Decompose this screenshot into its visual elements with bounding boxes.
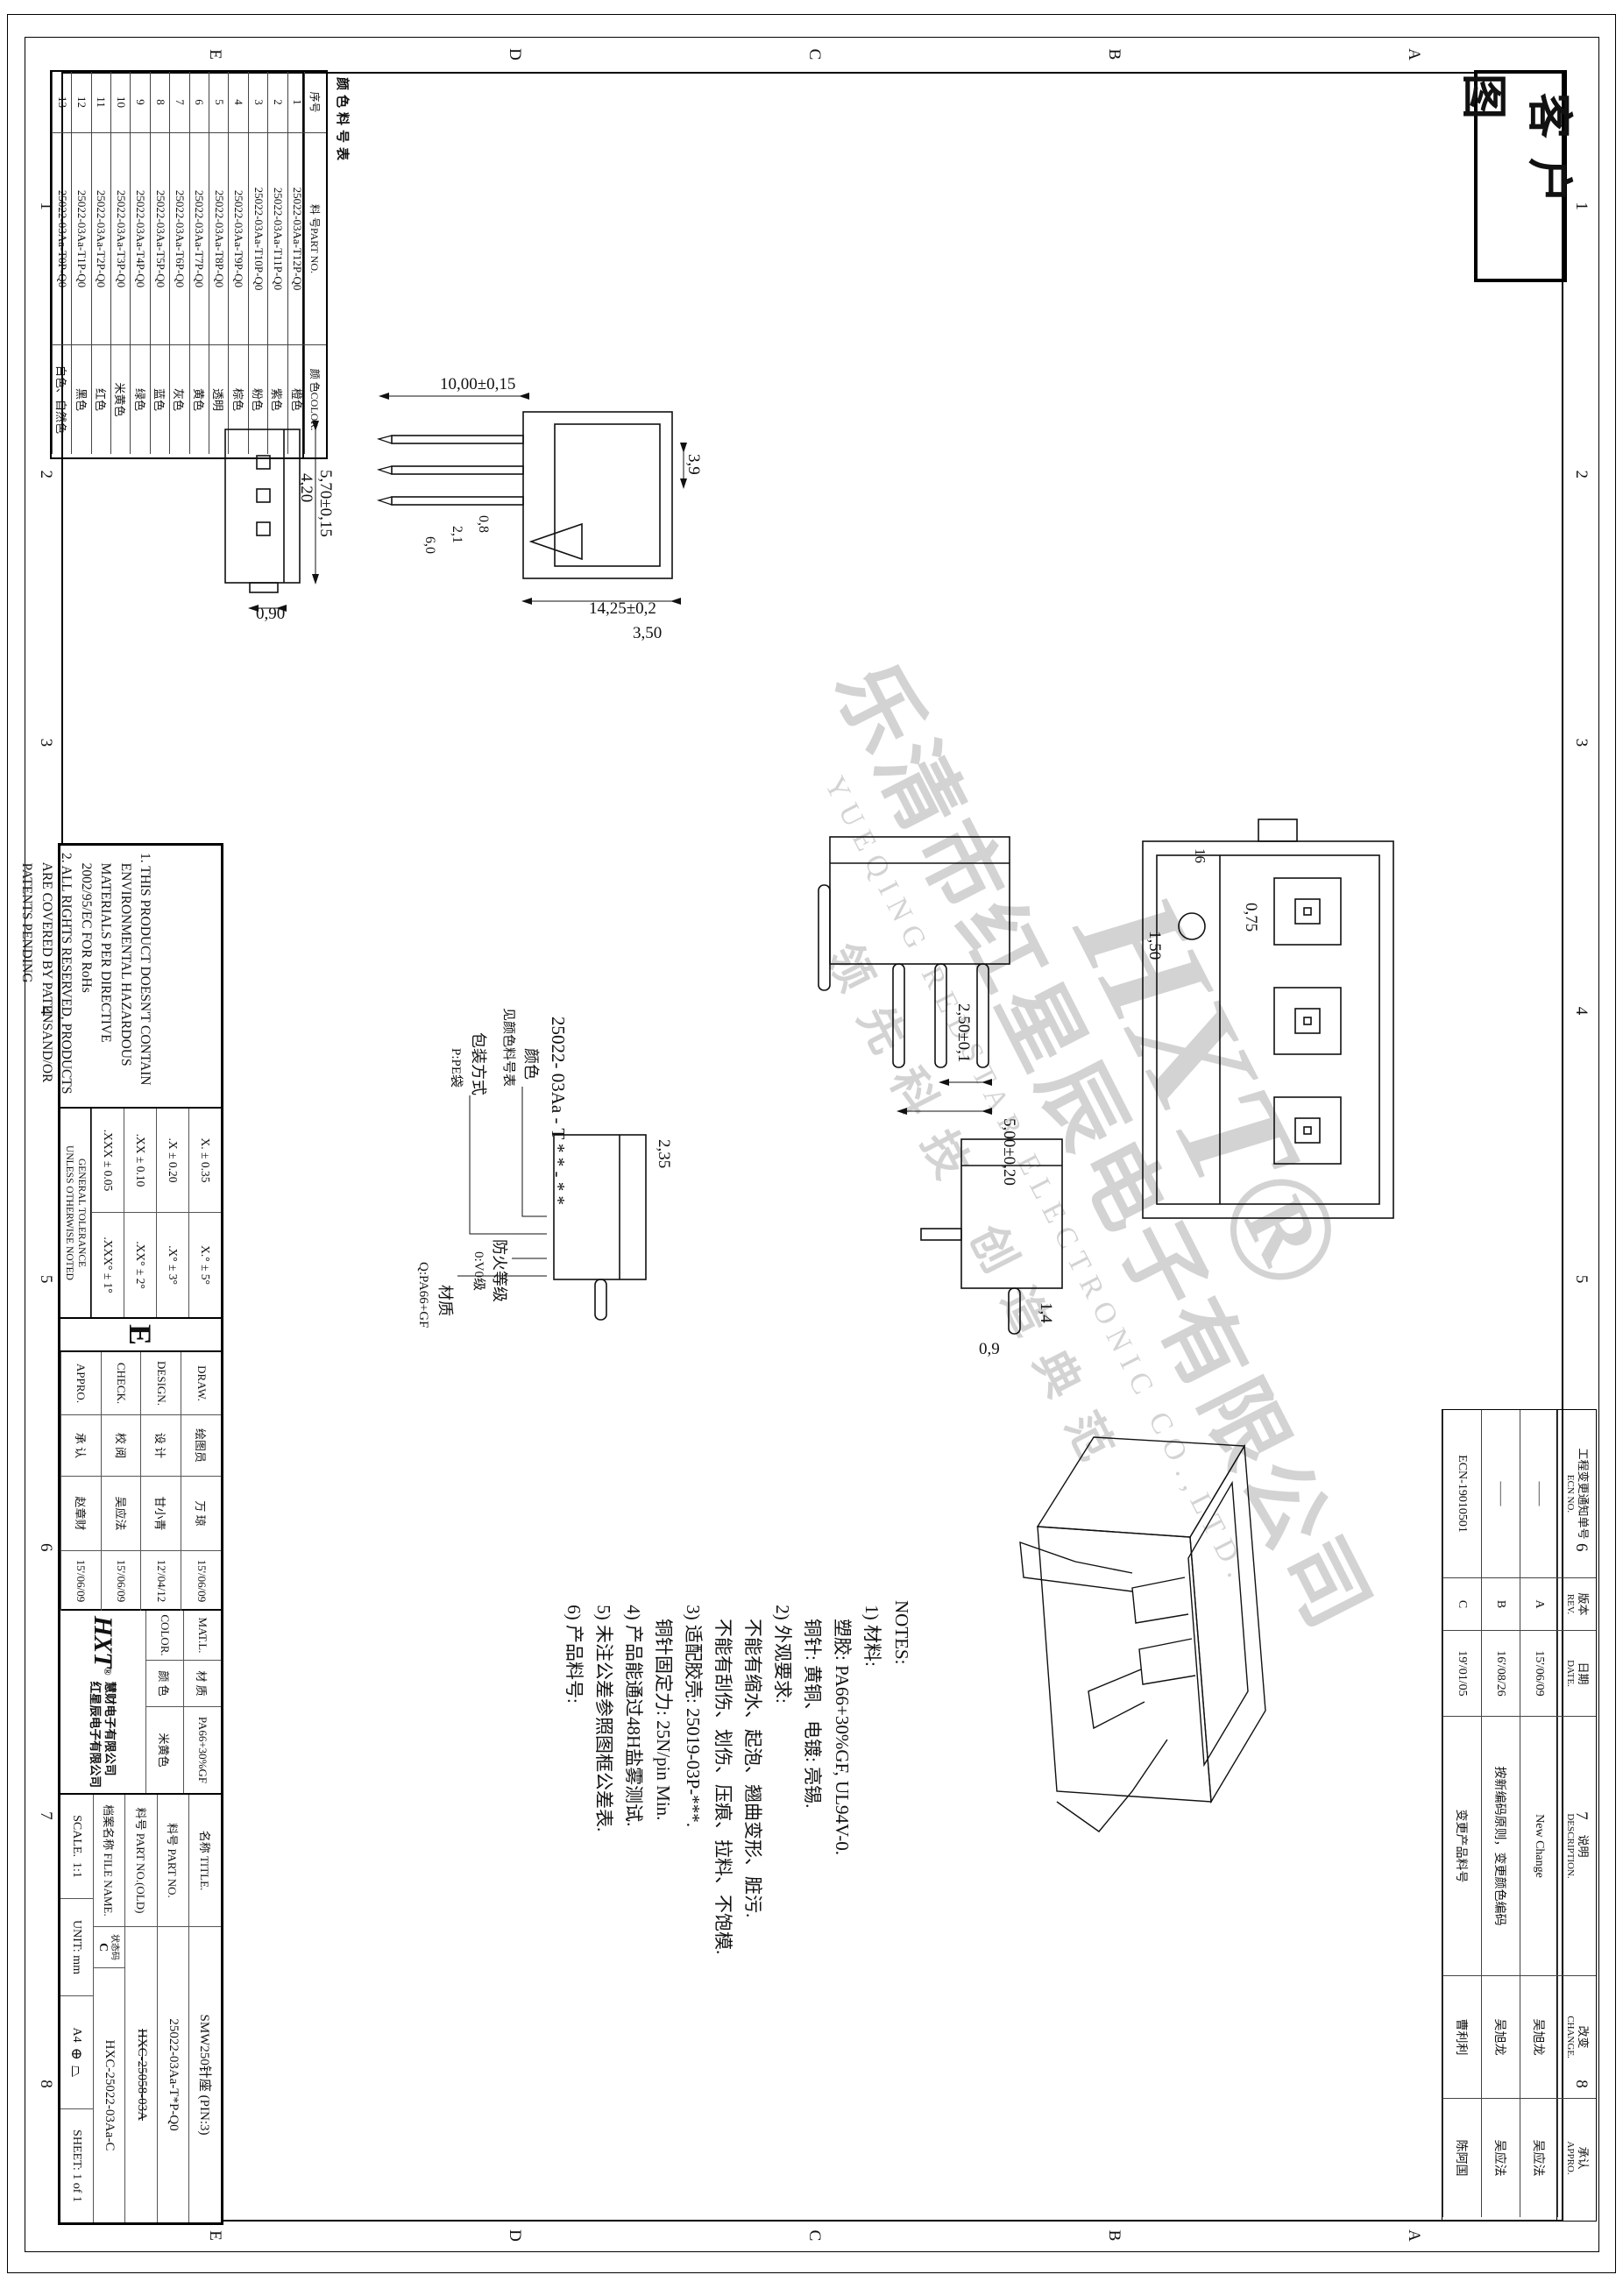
drawing-sheet: HXT® 乐清市红星辰电子有限公司 YUEQING REDSTAR ELECTR… [0,0,1623,2296]
zone-letter: C [664,2218,964,2253]
ecn-header-change: 改变CHANGE. [1557,1976,1596,2099]
note-line: 铜针: 黄铜、电镀: 亮锡. [797,1600,827,2144]
matl-value: PA66+30%GF [184,1707,221,1793]
title-value: SMW250针座 (PIN:3) [190,1927,222,2222]
ecn-header-date: 日期DATE. [1557,1631,1596,1717]
note-line: 2. ALL RIGHTS RESERVED, PRODUCTS [56,853,76,1103]
zone-letter: B [964,2218,1264,2253]
note-line: ENVIRONMENTAL HAZARDOUS [116,853,136,1103]
zone-number: 3 [1563,608,1599,876]
zone-letter: D [365,37,664,72]
old-partno-label: 料号 PART NO.(OLD) [126,1795,158,1927]
note-line: PATENTS PENDING [17,853,37,1103]
notes-english: 1. THIS PRODUCT DOESN'T CONTAIN ENVIRONM… [60,846,221,1109]
scale-row: SCALE.1:1 UNIT: mm A4 ⊕ ⏢ SHEET: 1 of 1 [60,1795,93,2222]
zone-letters-right: ABCDE [65,2218,1563,2253]
company-logo-block: HXT® 慧财电子有限公司 红星辰电子有限公司 [60,1611,145,1793]
note-line: 3) 适配胶壳: 25019-03P-***. [678,1600,708,2144]
note-line: NOTES: [887,1600,917,2144]
customer-drawing-stamp: 客户图 [1474,70,1567,282]
hxt-logo: HXT® [89,1616,118,1675]
col-header-part: 料 号PART NO. [304,133,326,345]
note-line: 1) 材料: [857,1600,887,2144]
note-line: ARE COVERED BY PATENSAND/OR [37,853,57,1103]
zone-number: 4 [1563,876,1599,1144]
zone-number: 5 [1563,1145,1599,1414]
note-line: 6) 产品料号: [559,1600,589,2144]
zone-number: 2 [1563,340,1599,608]
scale-cell: SCALE.1:1 [60,1795,93,1899]
ecn-header-desc: 说明DESCRIPTION. [1557,1717,1596,1976]
title-block: 1. THIS PRODUCT DOESN'T CONTAIN ENVIRONM… [58,843,223,2225]
note-line: 5) 未注公差参照图框公差表. [589,1600,619,2144]
note-line: 铜针固定力: 25N/pin Min. [648,1600,678,2144]
col-header-color: 颜 色COLOR. [304,345,326,454]
zone-letters-left: ABCDE [65,37,1563,72]
tolerance-table: X. ± 0.35X.° ± 5°.X ± 0.20.X° ± 3°.XX ± … [60,1109,221,1319]
projection-icon: ⏢ [68,2066,86,2078]
zone-number: 3 [28,608,64,876]
tolerance-entry: .X° ± 3° [156,1213,188,1317]
color-label-en: COLOR. [146,1611,183,1661]
filename-label: 档案名称 FILE NAME. [94,1795,125,1927]
tolerance-entry: .XXX° ± 1° [91,1213,124,1317]
ecn-rows: —— A 15'/06/09 New Change 吴旭龙 吴应法 —— B 1… [1442,1409,1558,2222]
tolerance-entry: .XX ± 0.10 [124,1109,156,1213]
note-line: 2) 外观要求: [768,1600,797,2144]
note-line: MATERIALS PER DIRECTIVE [96,853,116,1103]
zone-letter: A [1264,2218,1563,2253]
zone-letter: E [65,37,365,72]
color-table-title: 颜色料号表 [334,77,352,165]
title-label: 名称 TITLE. [190,1795,222,1927]
title-info-block: 名称 TITLE. SMW250针座 (PIN:3) 料号 PART NO. 2… [60,1795,221,2222]
ecn-table: 工程变更通知单号ECN NO. 版本REV. 日期DATE. 说明DESCRIP… [1556,1409,1597,2222]
note-line: 4) 产品能通过48H盐雾测试. [619,1600,648,2144]
unit-cell: UNIT: mm [60,1899,93,1996]
ecn-header-no: 工程变更通知单号ECN NO. [1557,1410,1596,1578]
ecn-header-rev: 版本REV. [1557,1578,1596,1631]
registered-icon: ® [103,1668,115,1675]
zone-letter: B [964,37,1264,72]
old-partno-value: HXC-25058-03A [126,1927,158,2222]
crosshair-icon: ⊕ [68,2048,86,2060]
col-header-seq: 序号 [304,72,326,133]
partno-value: 25022-03Aa-T*P-Q0 [158,1927,189,2222]
ecn-header-appro: 承认APPRO. [1557,2099,1596,2217]
color-part-rows: 1 25022-03Aa-T12P-Q0 橙色 2 25022-03Aa-T11… [50,70,307,459]
zone-letter: C [664,37,964,72]
tolerance-caption: GENERAL TOLERANCE UNLESS OTHERWISE NOTED [60,1109,91,1317]
filename-value: HXC-25022-03Aa-C [94,1968,125,2222]
note-line: 2002/95/EC FOR RoHs [76,853,96,1103]
tolerance-entry: X.° ± 5° [188,1213,221,1317]
matl-label-cn: 材 质 [184,1661,221,1707]
notes-chinese: NOTES: 1) 材料: 塑胶: PA66+30%GF, UL94V-0. 铜… [559,1600,1006,2144]
partno-label: 料号 PART NO. [158,1795,189,1927]
note-line: 不能有缩水、起泡、翘曲变形、脏污. [738,1600,768,2144]
tolerance-entry: .XX° ± 2° [124,1213,156,1317]
color-label-cn: 颜 色 [146,1661,183,1707]
zone-letter: A [1264,37,1563,72]
company-names: 慧财电子有限公司 红星辰电子有限公司 [89,1682,118,1789]
note-line: 塑胶: PA66+30%GF, UL94V-0. [827,1600,857,2144]
note-line: 1. THIS PRODUCT DOESN'T CONTAIN [135,853,155,1103]
sheet-cell: SHEET: 1 of 1 [60,2109,93,2222]
tolerance-entry: X. ± 0.35 [188,1109,221,1213]
color-value: 米黄色 [146,1707,183,1793]
note-line: 不能有刮伤、划伤、压痕、拉料、不饱模. [708,1600,738,2144]
zone-letter: D [365,2218,664,2253]
tolerance-entry: .X ± 0.20 [156,1109,188,1213]
material-block: MAT.L. 材 质 PA66+30%GF COLOR. 颜 色 米黄色 HXT… [60,1611,221,1795]
revision-letter-cell: E [60,1319,221,1352]
signature-table: DRAW. 绘图员 万 琼 15'/06/09 DESIGN. 设 计 甘小青 … [60,1352,221,1611]
paper-size-cell: A4 ⊕ ⏢ [60,1996,93,2109]
tolerance-entry: .XXX ± 0.05 [91,1109,124,1213]
status-code: 状态码C [94,1927,125,1968]
matl-label-en: MAT.L. [184,1611,221,1661]
